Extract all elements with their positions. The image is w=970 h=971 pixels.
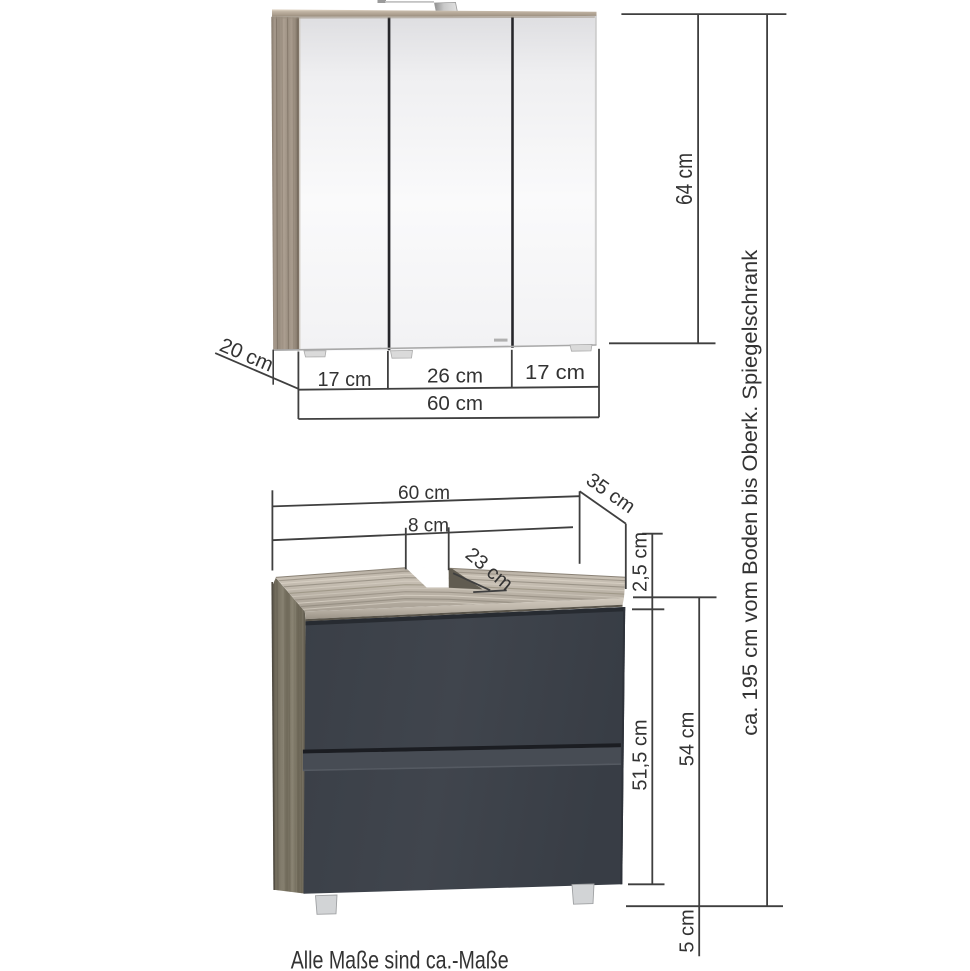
- svg-text:Alle Maße sind ca.-Maße: Alle Maße sind ca.-Maße: [291, 947, 509, 971]
- svg-text:54 cm: 54 cm: [677, 712, 699, 766]
- svg-text:8 cm: 8 cm: [408, 516, 449, 537]
- svg-text:51,5 cm: 51,5 cm: [630, 719, 652, 790]
- svg-text:64 cm: 64 cm: [671, 153, 697, 205]
- svg-text:ca. 195 cm vom Boden bis Oberk: ca. 195 cm vom Boden bis Oberk. Spiegels…: [739, 249, 762, 736]
- svg-text:5 cm: 5 cm: [677, 909, 699, 952]
- svg-text:17 cm: 17 cm: [525, 362, 585, 384]
- svg-text:2,5 cm: 2,5 cm: [630, 532, 652, 592]
- svg-text:60 cm: 60 cm: [427, 393, 483, 415]
- svg-text:60 cm: 60 cm: [398, 483, 450, 504]
- svg-text:26 cm: 26 cm: [427, 366, 483, 388]
- svg-text:17 cm: 17 cm: [318, 369, 372, 391]
